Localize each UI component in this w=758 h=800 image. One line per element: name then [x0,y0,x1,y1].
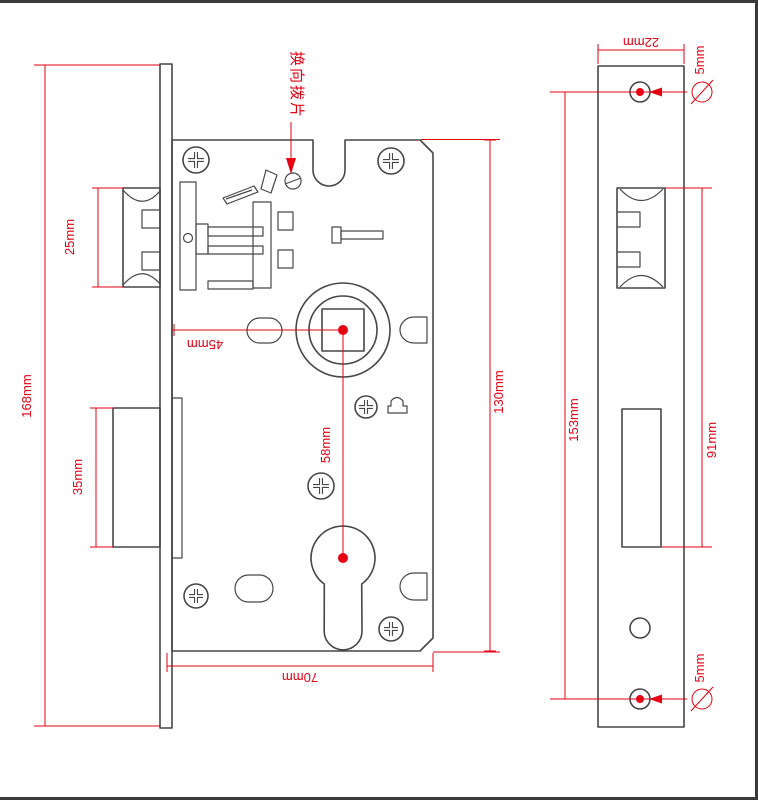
screw-head-icon [308,473,334,499]
latch-bolt-front [123,188,160,287]
dim-91mm: 91mm [661,188,719,547]
note-label: 换向拨片 [288,51,305,119]
lock-dimension-drawing: 168mm 25mm 35mm 45mm 58mm [0,0,758,800]
reversing-screw [285,173,301,189]
diameter-symbol-icon [691,687,713,711]
trip-lever [223,186,258,204]
dim-70mm: 70mm [167,653,433,685]
d-cutout-upper [400,317,427,343]
d-cutout-lower [400,573,427,600]
side-view [598,66,684,727]
front-view [113,64,433,728]
lock-case-outline [172,140,433,651]
center-dot-spindle [338,325,348,335]
down-arrow-icon [286,158,296,174]
dim-25mm: 25mm [62,188,123,287]
dim-153mm: 153mm [559,92,581,699]
dimensions-side: 22mm 153mm 91mm 5mm [550,35,719,711]
reversing-tab-note: 换向拨片 [286,51,305,174]
screw-head-icon [379,617,403,641]
dim-label-168mm: 168mm [19,374,34,417]
dim-label-5mm-top: 5mm [692,46,707,75]
faceplate-front [160,64,172,728]
oval-slot-bottom [235,575,273,602]
center-dot-cylinder [338,553,348,563]
dim-label-130mm: 130mm [491,370,506,413]
dim-label-25mm: 25mm [62,219,77,255]
left-arrow-icon [649,88,662,97]
deadbolt-slot-side [622,409,661,547]
dim-label-70mm: 70mm [282,670,318,685]
deadbolt-tail [172,398,182,558]
dim-22mm: 22mm [598,35,684,64]
faceplate-side [598,66,684,727]
dim-label-58mm: 58mm [318,427,333,463]
cylinder-fixing-hole [630,618,650,638]
callout-5mm-top: 5mm [550,46,713,104]
screw-head-icon [378,148,404,174]
cam-cutout [388,398,407,414]
dim-35mm: 35mm [70,408,113,547]
left-arrow-icon [649,695,662,704]
screw-head-icon [184,584,208,608]
latch-mechanism [180,170,383,290]
latch-bolt-side [617,188,665,288]
dim-45mm: 45mm [172,324,343,352]
dim-168mm: 168mm [19,65,160,726]
dim-label-153mm: 153mm [566,398,581,441]
screw-head-icon [355,396,377,418]
pawl [261,170,277,193]
page-border [0,0,758,800]
dim-label-22mm: 22mm [623,35,659,50]
dim-label-45mm: 45mm [187,337,223,352]
callout-5mm-bottom: 5mm [550,654,713,711]
screw-head-icon [183,147,209,173]
dim-label-91mm: 91mm [704,422,719,458]
deadbolt-front [113,408,160,547]
dim-label-35mm: 35mm [70,459,85,495]
dim-label-5mm-bottom: 5mm [692,654,707,683]
technical-drawing-page: 168mm 25mm 35mm 45mm 58mm [0,0,758,800]
diameter-symbol-icon [691,80,713,104]
